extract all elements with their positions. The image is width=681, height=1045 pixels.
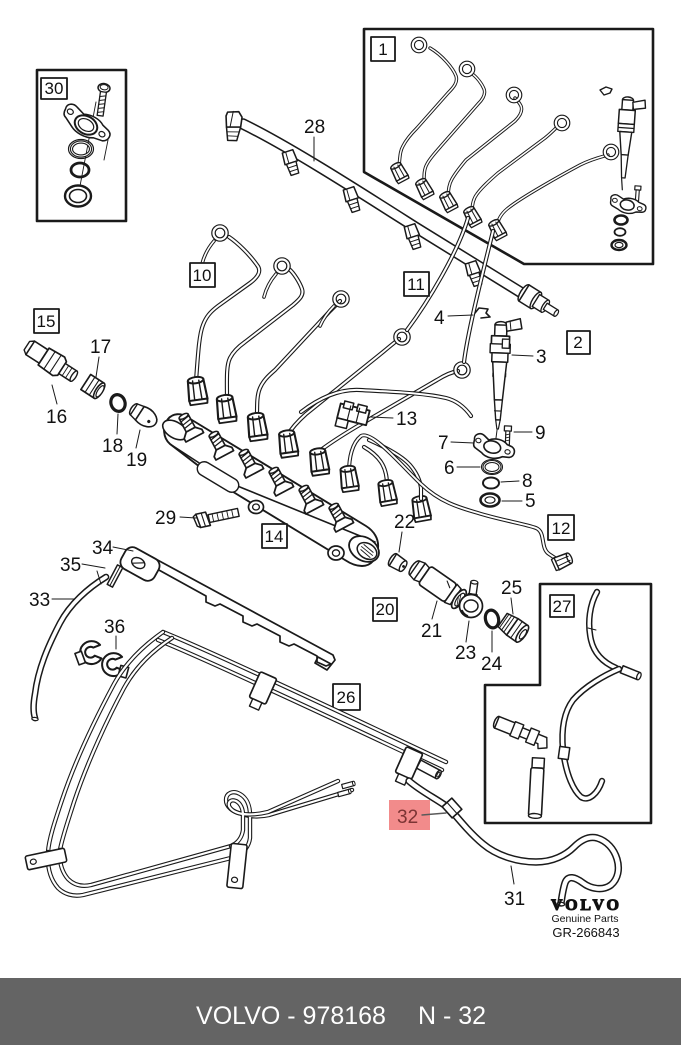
svg-text:6: 6 [444,458,455,479]
svg-text:22: 22 [394,512,415,533]
svg-text:24: 24 [481,654,503,675]
svg-text:11: 11 [407,275,425,294]
svg-text:GR-266843: GR-266843 [552,925,619,940]
svg-text:27: 27 [553,597,572,616]
svg-text:32: 32 [397,807,418,828]
svg-text:35: 35 [60,555,81,576]
svg-text:14: 14 [265,527,284,546]
svg-text:10: 10 [193,266,212,285]
svg-text:31: 31 [504,889,525,910]
svg-text:9: 9 [535,423,546,444]
svg-text:4: 4 [434,308,445,329]
svg-text:20: 20 [376,600,395,619]
svg-text:12: 12 [552,519,571,538]
svg-text:21: 21 [421,621,442,642]
svg-text:5: 5 [525,491,536,512]
svg-text:8: 8 [522,471,533,492]
svg-text:13: 13 [396,409,417,430]
svg-text:29: 29 [155,508,176,529]
svg-text:36: 36 [104,617,125,638]
svg-text:2: 2 [573,333,582,352]
svg-text:23: 23 [455,643,476,664]
svg-text:VOLVO - 978168: VOLVO - 978168 [196,1002,386,1030]
svg-text:15: 15 [37,312,56,331]
svg-text:19: 19 [126,450,147,471]
svg-text:Genuine Parts: Genuine Parts [551,913,618,925]
svg-text:VOLVO: VOLVO [551,897,621,914]
svg-text:28: 28 [304,117,325,138]
svg-text:3: 3 [536,347,547,368]
svg-text:16: 16 [46,407,67,428]
svg-text:17: 17 [90,337,111,358]
svg-text:18: 18 [102,436,123,457]
svg-text:26: 26 [337,688,356,707]
svg-text:1: 1 [378,40,387,59]
svg-text:30: 30 [45,79,64,98]
svg-text:N - 32: N - 32 [418,1002,486,1030]
svg-text:25: 25 [501,578,522,599]
svg-text:33: 33 [29,590,50,611]
svg-text:7: 7 [438,433,449,454]
svg-text:34: 34 [92,538,114,559]
